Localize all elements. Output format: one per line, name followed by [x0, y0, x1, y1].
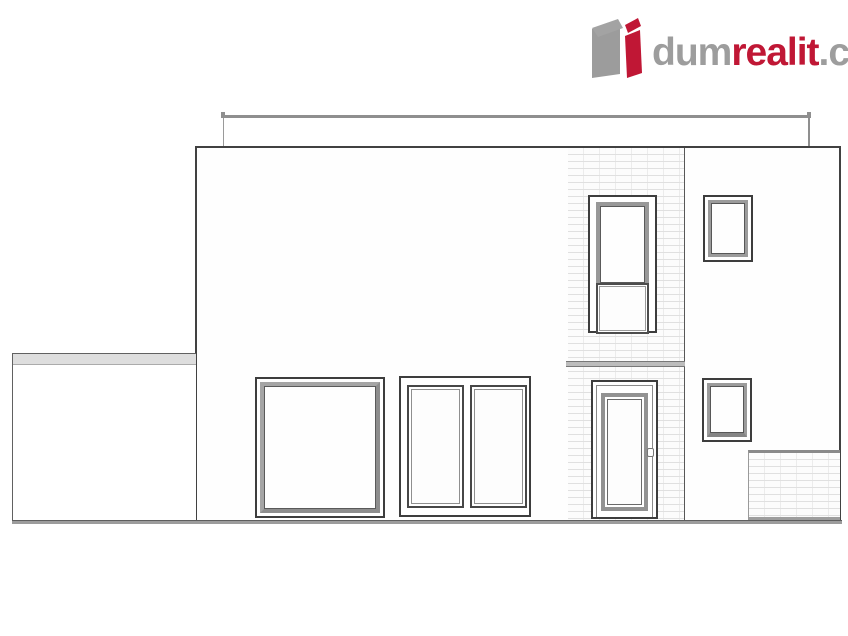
door-handle [647, 448, 654, 457]
door-glass-panel [607, 399, 642, 505]
window-pane [264, 386, 376, 509]
flat-roof-parapet [223, 115, 810, 146]
brand-text-dum: dum [652, 31, 731, 74]
parapet-cap-right [807, 112, 811, 118]
window-pane [600, 206, 645, 283]
brick-wall-bottom-right [748, 450, 840, 520]
wall-coping-band [13, 354, 196, 365]
window-pane [411, 389, 460, 504]
small-window-upper-right [703, 195, 753, 262]
window-pane [474, 389, 523, 504]
elevation-drawing-page: dumrealit.cz [0, 0, 848, 636]
dumrealit-cube-icon [590, 15, 642, 81]
entrance-door [591, 380, 658, 519]
door-leaf [601, 393, 648, 511]
double-casement-window [399, 376, 531, 517]
window-sash [708, 200, 748, 257]
large-fixed-window [255, 377, 385, 518]
window-pane [711, 203, 745, 254]
brand-wordmark: dumrealit.cz [652, 33, 848, 72]
small-window-lower-right [702, 378, 752, 442]
window-sash [260, 382, 380, 513]
casement-right [470, 385, 527, 508]
brand-text-realit: realit [731, 31, 818, 74]
window-sash [707, 383, 747, 437]
stair-window-with-lower-panel [588, 195, 657, 333]
casement-left [407, 385, 464, 508]
ground-line [12, 520, 842, 524]
brand-text-cz: .cz [819, 31, 848, 74]
parapet-cap-left [221, 112, 225, 118]
door-lintel-band [566, 361, 685, 367]
low-wall-left [12, 353, 196, 521]
window-pane [710, 386, 744, 433]
stair-window-sash [596, 202, 649, 287]
stair-window-panel [596, 283, 649, 334]
main-facade [195, 146, 841, 521]
panel-inner-line [599, 286, 646, 331]
